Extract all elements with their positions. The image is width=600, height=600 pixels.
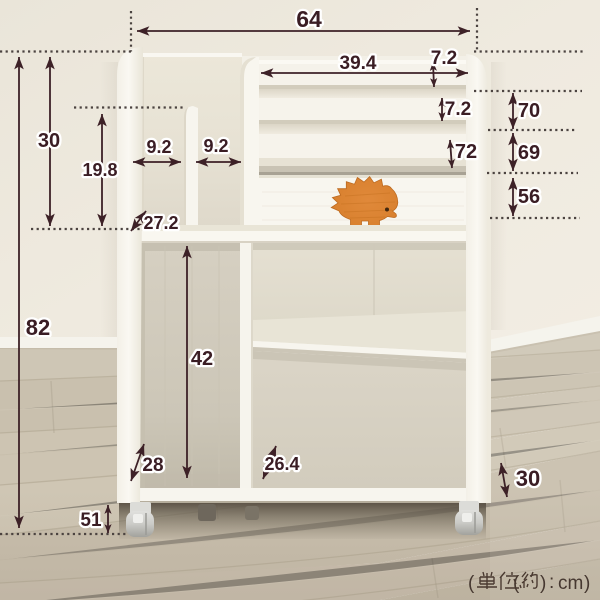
svg-text:82: 82: [26, 315, 50, 340]
svg-text:27.2: 27.2: [143, 213, 178, 233]
svg-text:): ): [540, 573, 546, 594]
svg-text:69: 69: [518, 142, 540, 164]
svg-text:7.2: 7.2: [445, 99, 471, 120]
svg-text:56: 56: [518, 186, 540, 208]
svg-text:70: 70: [518, 100, 540, 122]
svg-text:9.2: 9.2: [203, 136, 228, 156]
svg-text:(: (: [468, 573, 475, 594]
svg-text:30: 30: [38, 130, 60, 152]
svg-text:51: 51: [80, 510, 102, 531]
svg-text:9.2: 9.2: [146, 137, 171, 157]
svg-text:28: 28: [142, 455, 163, 476]
svg-text:30: 30: [516, 466, 540, 491]
svg-text:19.8: 19.8: [82, 160, 117, 180]
svg-text:42: 42: [191, 348, 213, 370]
svg-text:7.2: 7.2: [431, 48, 457, 69]
svg-text:26.4: 26.4: [264, 454, 299, 474]
svg-text:72: 72: [455, 141, 477, 163]
svg-text:): ): [584, 573, 590, 594]
svg-text::: :: [549, 572, 554, 593]
svg-text:cm: cm: [558, 573, 583, 594]
svg-text:39.4: 39.4: [340, 53, 377, 74]
svg-text:64: 64: [296, 6, 322, 32]
